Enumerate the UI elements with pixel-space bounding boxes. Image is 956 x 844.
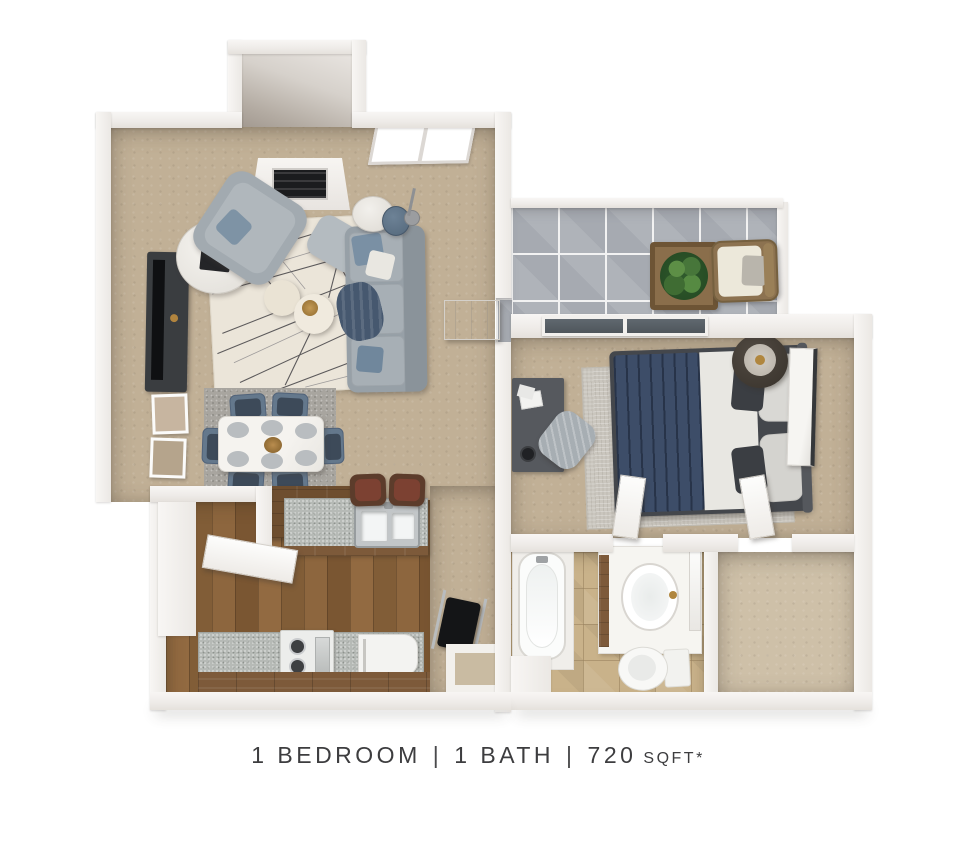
front-door [444,300,500,340]
vanity-counter [598,546,702,654]
sofa-back [403,225,428,391]
floorplan-caption: 1 BEDROOM|1 BATH|720SQFT* [0,742,956,769]
caption-bedroom-count: 1 BEDROOM [251,742,421,768]
bathtub-basin [526,564,558,648]
floor-plan [0,0,956,844]
chair-seat [325,434,342,461]
bar-stool [388,473,425,506]
bath-closet-wall [704,552,718,692]
bottom-wall-right [511,692,872,710]
placemat [295,450,317,466]
walk-in-closet-floor [718,552,854,694]
vanity-cabinet-side [599,555,609,647]
table-lamp-finial [755,355,765,365]
planter-stand [650,242,718,310]
sliding-glass-door [542,316,708,336]
wall-photo-frame [151,393,188,434]
vanity-sink-basin [631,573,669,621]
bed-bath-divider-wall [663,534,738,552]
bathtub-faucet [536,556,548,563]
gold-sculpture [302,300,318,316]
chair-seat [277,397,304,416]
middle-wall-lower [495,342,511,712]
dining-table [218,416,324,472]
caption-area-unit: SQFT* [643,750,704,767]
dishwasher-handle [363,639,366,673]
sofa [345,225,428,392]
placemat [261,420,283,436]
patio-chair [711,239,779,303]
vanity-mirror [689,549,701,631]
leaning-mirror [786,348,817,467]
right-wall [854,314,872,710]
sliding-door-divider [623,319,627,333]
nightstand [732,334,788,388]
caption-bath-count: 1 BATH [454,742,554,768]
waste-bin [520,446,536,462]
middle-wall-upper [495,112,511,298]
caption-area-value: 720 [588,742,637,768]
potted-plant [660,252,708,300]
living-top-wall [352,112,511,128]
bar-stool-seat [355,479,382,502]
bottom-wall-left [150,692,511,710]
patio-top-rail [511,198,783,208]
tub-foot-wall [511,656,551,694]
chair-seat [234,398,261,418]
tv-screen [151,260,165,380]
kitchen-top-wall [150,486,272,502]
entry-vestibule-floor [242,54,352,127]
placemat [261,453,283,469]
window-divider [418,127,429,161]
burner [289,638,306,655]
bar-stool-seat [394,479,421,502]
placemat [227,422,249,438]
caption-separator: | [433,742,442,768]
storage-closet-wall-column [158,502,196,636]
kitchen-sink [354,504,420,548]
wall-photo-frame [149,437,186,478]
dishwasher [358,634,418,676]
vestibule-top-wall [228,40,366,54]
living-left-wall [96,112,111,502]
centerpiece [264,437,282,453]
floor-plan-page: 1 BEDROOM|1 BATH|720SQFT* [0,0,956,844]
vanity-faucet [669,591,677,599]
sofa-pillow-blue [356,345,384,373]
caption-separator: | [566,742,575,768]
placemat [295,423,317,439]
placemat [227,451,249,467]
toilet [617,640,698,696]
console-decor [170,314,178,322]
sink-basin [360,510,388,542]
sink-basin [391,512,415,540]
bed-closet-divider-wall [792,534,854,552]
bar-stool [349,473,386,506]
bathtub [518,552,566,660]
floor-lamp [404,210,420,226]
patio-chair-armrest [763,243,775,297]
living-top-wall [96,112,242,128]
range-control-panel [315,637,330,675]
bed-bath-divider-wall [511,534,613,552]
living-window [368,123,476,165]
